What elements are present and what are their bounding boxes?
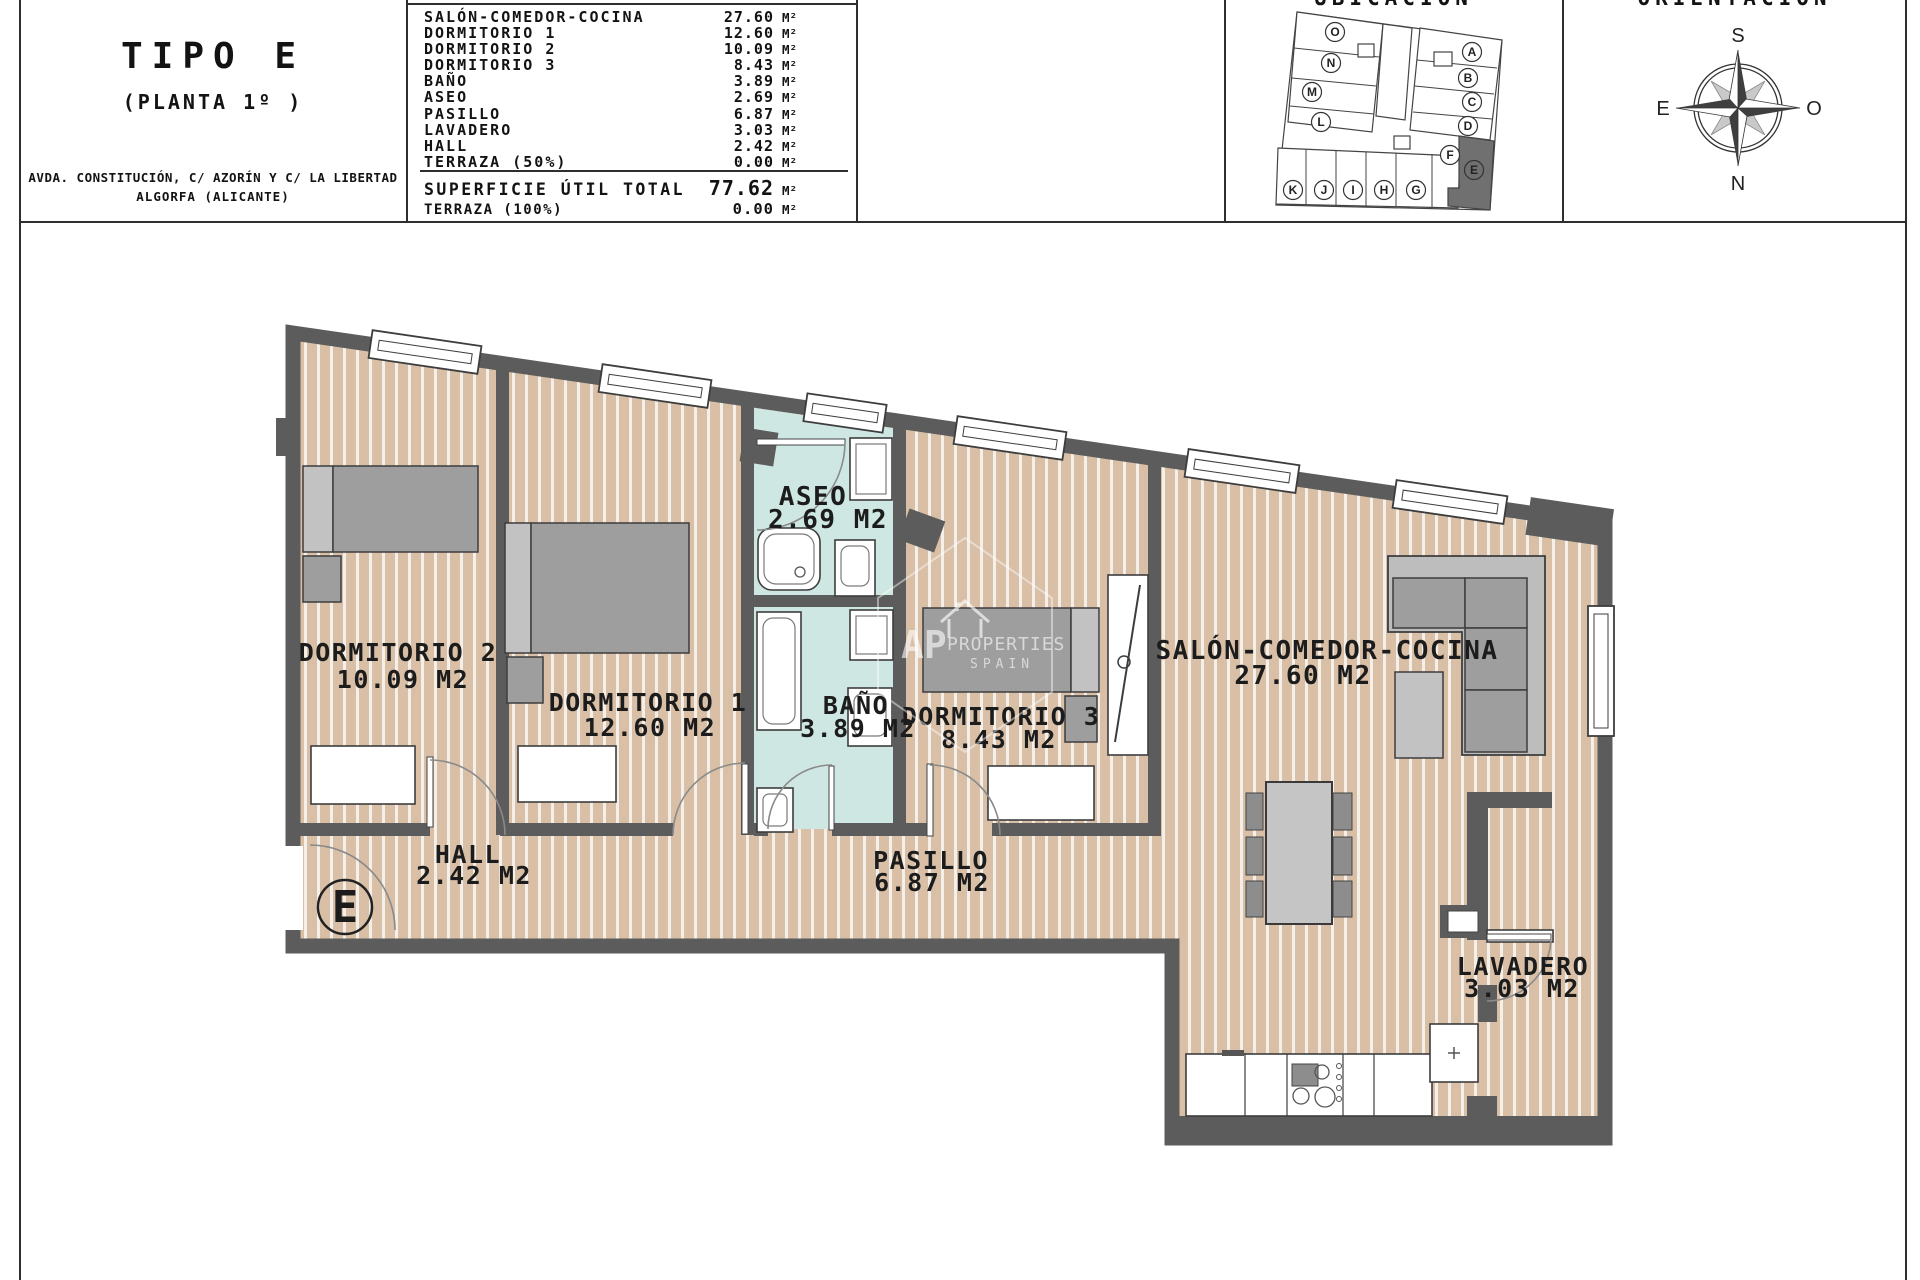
compass-north: N [1731,173,1745,195]
fridge-handle [1222,1050,1244,1056]
svg-text:M: M [1307,85,1317,99]
dining-set [1246,782,1352,924]
svg-text:3.89 M2: 3.89 M2 [800,714,916,743]
floor-plan: E DORMITORIO 2 10.09 M2 DORMITORIO 1 12.… [276,330,1614,1138]
svg-text:H: H [1380,183,1389,197]
compass-west: O [1806,98,1822,120]
svg-text:D: D [1464,119,1473,133]
compass-rose-icon: S N E O [1656,25,1821,195]
entrance-label: E [332,882,359,933]
dresser [988,766,1094,820]
room-label-dormitorio-2: DORMITORIO 2 [299,638,498,667]
svg-text:K: K [1289,183,1298,197]
nightstand [303,556,341,602]
compass-cardinals [1676,50,1800,166]
nightstand [507,657,543,703]
dresser [518,746,616,802]
svg-text:L: L [1317,115,1324,129]
svg-text:PROPERTIES: PROPERTIES [947,634,1065,655]
svg-text:SPAIN: SPAIN [970,657,1034,672]
svg-text:12.60 M2: 12.60 M2 [584,713,716,742]
svg-text:AP: AP [901,623,947,667]
wardrobe-door-leaf [1108,575,1148,755]
site-plan: O N M L A B C D F E K J I H G [1276,12,1502,210]
compass-south: S [1731,25,1744,47]
svg-text:2.42 M2: 2.42 M2 [416,861,532,890]
svg-text:A: A [1468,45,1477,59]
svg-text:27.60 M2: 27.60 M2 [1234,661,1371,691]
svg-text:B: B [1464,71,1473,85]
dresser [311,746,415,804]
window-right-wall [1588,606,1614,736]
svg-text:F: F [1446,148,1453,162]
svg-text:G: G [1411,183,1420,197]
plan-canvas: E DORMITORIO 2 10.09 M2 DORMITORIO 1 12.… [0,0,1920,1280]
svg-text:O: O [1330,25,1339,39]
dining-table [1266,782,1332,924]
svg-text:E: E [1470,163,1478,177]
svg-text:6.87 M2: 6.87 M2 [874,868,990,897]
svg-text:C: C [1468,95,1477,109]
svg-text:2.69 M2: 2.69 M2 [768,505,888,535]
coffee-table [1395,672,1443,758]
wall-stub [276,418,298,456]
svg-text:N: N [1327,56,1336,70]
svg-text:I: I [1351,183,1354,197]
kitchen-counter [1186,1050,1432,1116]
svg-text:3.03 M2: 3.03 M2 [1464,974,1580,1003]
svg-text:J: J [1321,183,1328,197]
washing-machine [1430,1024,1478,1082]
svg-text:10.09 M2: 10.09 M2 [337,665,469,694]
compass-east: E [1656,98,1669,120]
entrance-opening [284,846,303,930]
